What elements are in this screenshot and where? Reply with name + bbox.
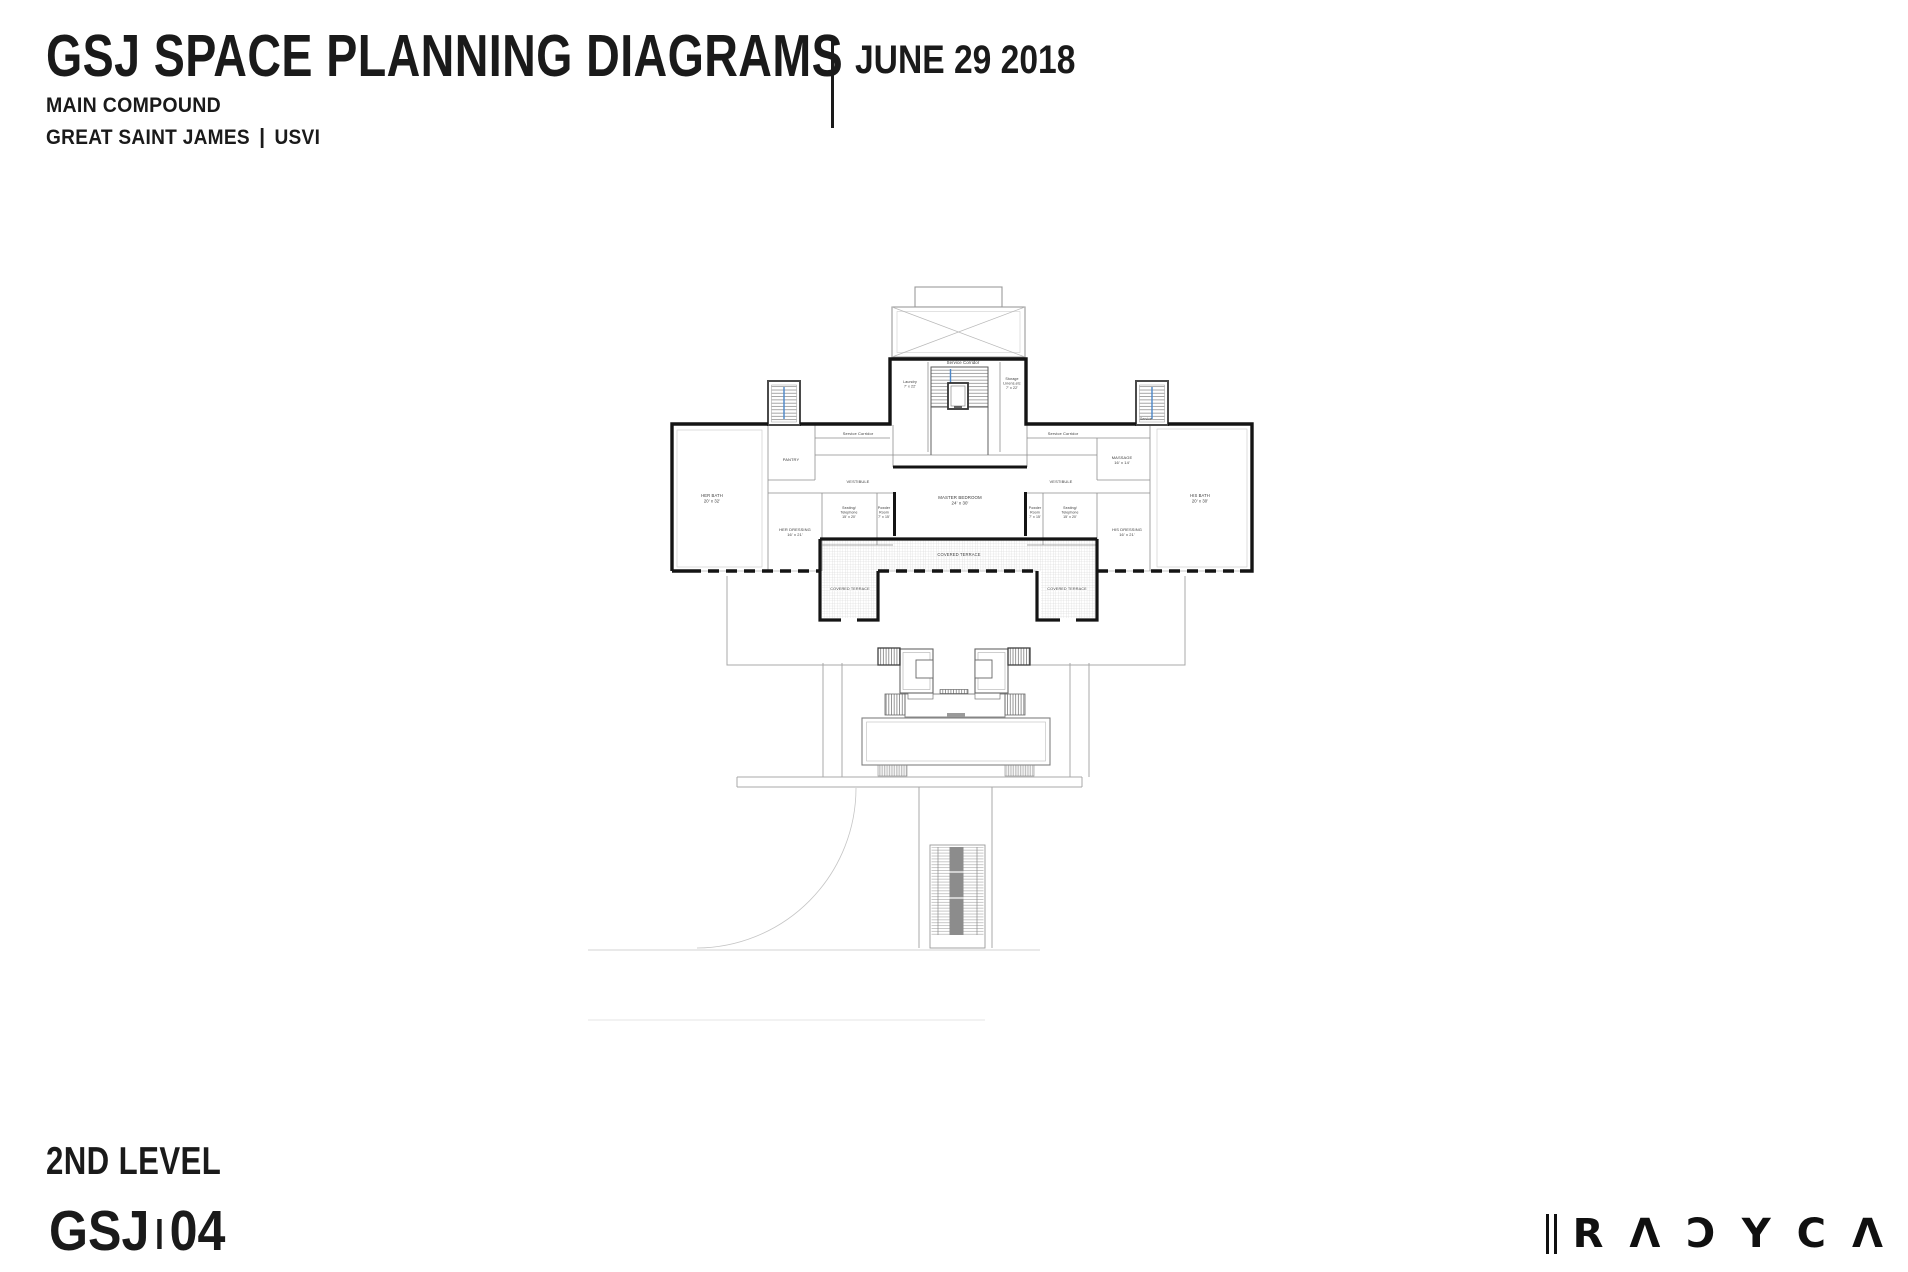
- room-label: PowderRoom7' x 15': [1029, 506, 1042, 519]
- platform-grate: [947, 713, 965, 717]
- lower-deck-edge: [737, 777, 1082, 787]
- sheet-prefix: GSJ: [49, 1198, 149, 1264]
- logo-bars-icon: [1546, 1214, 1557, 1254]
- room-label: Service Corridor: [843, 431, 874, 436]
- room-label: StorageLinens,etc7' x 22': [1003, 377, 1020, 390]
- hatch-block-left: [878, 765, 907, 776]
- path-curve: [697, 788, 856, 948]
- lower-level-lines: [588, 576, 1185, 1020]
- room-label: HIS BATH20' x 30': [1190, 493, 1210, 503]
- logo-letters: RΛƆYCΛ: [1573, 1214, 1883, 1254]
- room-label: Service: [1140, 417, 1152, 421]
- logo-letter: C: [1797, 1211, 1826, 1257]
- floor-plan: Service CorridorLaundry7' x 22'StorageLi…: [0, 0, 1908, 1272]
- stair-run-right-lower: [1005, 694, 1025, 715]
- room-label: VESTIBULE: [847, 479, 870, 484]
- sheet-id: GSJ 04: [49, 1198, 225, 1264]
- room-label: COVERED TERRACE: [830, 587, 870, 591]
- room-label: Service Corridor: [1048, 431, 1079, 436]
- terrace-wing-left: [822, 571, 876, 618]
- landing-left-step: [916, 660, 933, 678]
- room-label: HER DRESSING16' x 21': [779, 527, 811, 537]
- landing-right-step: [975, 660, 992, 678]
- stair-run-right-upper: [1008, 648, 1030, 665]
- landing-structures: [862, 648, 1050, 948]
- stair-run-left-upper: [878, 648, 900, 665]
- roof-chimney: [915, 287, 1002, 307]
- logo-letter: Y: [1742, 1211, 1771, 1257]
- room-label: COVERED TERRACE: [937, 552, 980, 557]
- right-wing-walls: [1168, 424, 1252, 571]
- room-label: MASTER BEDROOM24' x 30': [938, 495, 982, 506]
- logo-letter: Ɔ: [1686, 1211, 1715, 1257]
- terrace-wing-right: [1041, 571, 1095, 618]
- radyca-logo: RΛƆYCΛ: [1546, 1214, 1883, 1254]
- pool-deck: [862, 718, 1050, 765]
- roof-monitor: [892, 287, 1025, 357]
- room-label: MASSAGE16' x 14': [1112, 455, 1133, 465]
- grate-strip: [940, 690, 968, 694]
- room-label: Seating/Telephone15' x 20': [1061, 506, 1078, 519]
- room-label: PowderRoom7' x 15': [878, 506, 891, 519]
- vertical-circulation: [768, 367, 1168, 425]
- sheet-divider: [157, 1219, 161, 1249]
- lower-terrace-outline: [727, 576, 1185, 665]
- grand-stair-ramp: [950, 847, 964, 935]
- logo-letter: R: [1573, 1211, 1604, 1257]
- room-label: Seating/Telephone15' x 20': [840, 506, 857, 519]
- hatch-block-right: [1005, 765, 1034, 776]
- room-label: HER BATH20' x 32': [701, 493, 723, 503]
- logo-letter: Λ: [1629, 1211, 1660, 1257]
- logo-letter: Λ: [1852, 1211, 1883, 1257]
- room-label: VESTIBULE: [1050, 479, 1073, 484]
- room-label: PANTRY: [783, 457, 800, 462]
- room-label: Service Corridor: [947, 360, 980, 365]
- room-label: COVERED TERRACE: [1047, 587, 1087, 591]
- room-label: Laundry7' x 22': [903, 380, 917, 389]
- room-label: HIS DRESSING16' x 21': [1112, 527, 1142, 537]
- core-walls: [931, 407, 988, 455]
- sheet-number: 04: [170, 1198, 226, 1264]
- stair-run-left-lower: [885, 694, 905, 715]
- level-label: 2ND LEVEL: [46, 1140, 221, 1184]
